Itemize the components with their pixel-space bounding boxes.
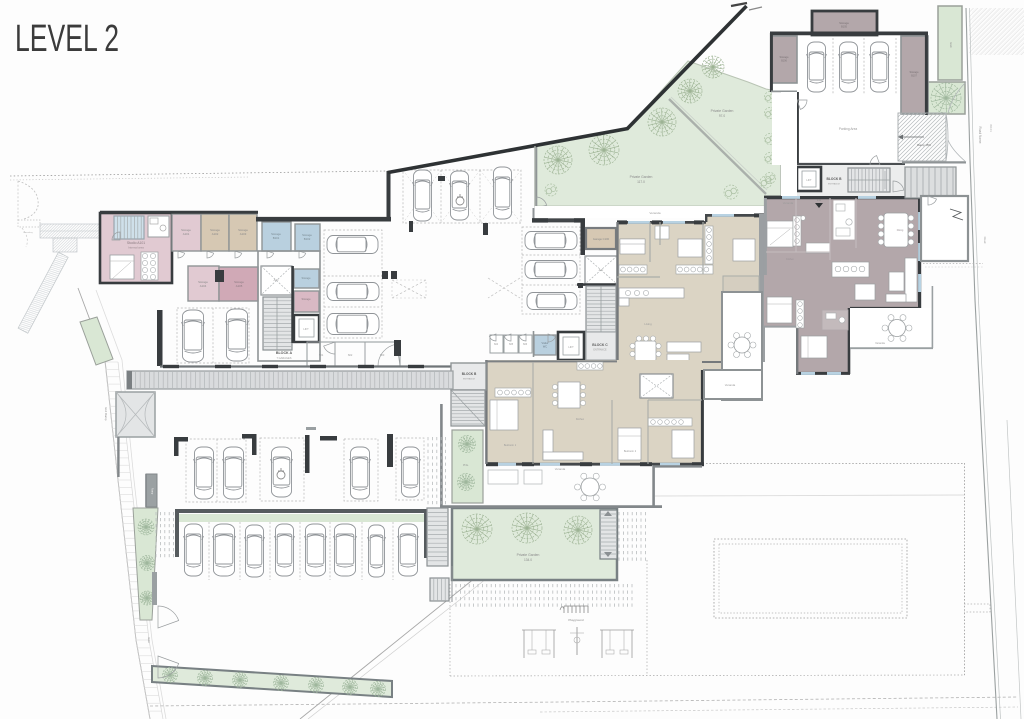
svg-text:S04: S04 [494,343,499,346]
svg-text:LIFT: LIFT [303,327,309,331]
svg-text:B101: B101 [273,236,280,240]
svg-text:Veranda: Veranda [649,211,661,215]
svg-text:BLOCK A: BLOCK A [276,351,293,355]
svg-text:ENTRANCE: ENTRANCE [593,349,607,352]
svg-text:Bedroom 2: Bedroom 2 [624,450,637,453]
svg-text:S05: S05 [509,343,514,346]
svg-text:Exit: Exit [949,42,953,47]
svg-text:B107: B107 [911,75,917,78]
svg-text:117.0: 117.0 [637,180,645,184]
svg-text:A105: A105 [236,284,243,288]
svg-text:Veranda: Veranda [875,341,885,345]
svg-text:Dining: Dining [897,230,904,232]
svg-text:Studio A101: Studio A101 [127,241,145,245]
svg-text:S06: S06 [523,343,528,346]
svg-text:B105: B105 [841,26,847,29]
svg-text:Storage: Storage [909,70,919,74]
svg-text:LIFT: LIFT [806,179,812,182]
svg-text:A/C: A/C [273,278,279,282]
svg-text:7 GARAGES: 7 GARAGES [277,356,292,360]
svg-text:BLOCK B: BLOCK B [826,177,842,181]
svg-text:A102: A102 [212,232,219,236]
svg-text:LIFT: LIFT [568,345,574,349]
svg-text:B106: B106 [781,60,787,63]
svg-text:Veranda: Veranda [783,201,794,205]
svg-text:Storage: Storage [839,21,849,25]
svg-text:LEVEL 2: LEVEL 2 [15,18,119,60]
svg-text:Veranda: Veranda [555,467,566,471]
svg-text:Kitchen: Kitchen [786,258,794,261]
svg-text:Road: Road [983,237,987,244]
svg-text:A/C: A/C [599,268,604,272]
svg-text:Private Garden: Private Garden [711,109,734,113]
svg-text:Veranda: Veranda [725,383,736,387]
svg-text:B102: B102 [304,237,311,241]
svg-text:Private Garden: Private Garden [517,553,540,557]
svg-text:A103: A103 [240,232,247,236]
svg-text:Storage: Storage [301,276,311,280]
svg-text:Playground: Playground [568,618,584,622]
svg-text:Ramp: Ramp [151,488,154,495]
svg-text:A101: A101 [183,232,190,236]
svg-text:W101: W101 [989,124,993,132]
svg-text:Parking Area: Parking Area [839,127,857,131]
svg-text:Living: Living [644,322,652,326]
svg-text:Internal area: Internal area [128,246,144,250]
svg-text:134.0: 134.0 [524,558,532,562]
svg-text:S02: S02 [348,353,353,357]
svg-text:Ramp 15%: Ramp 15% [917,143,931,147]
svg-text:ENTRANCE: ENTRANCE [463,378,476,381]
svg-text:BLOCK C: BLOCK C [592,343,608,347]
svg-text:A104: A104 [200,284,207,288]
svg-text:Exit Ramp: Exit Ramp [104,408,108,421]
svg-text:Gate: Gate [147,637,151,643]
svg-text:P.G.: P.G. [463,463,469,467]
svg-text:Storage: Storage [301,297,311,301]
svg-text:Garage C100: Garage C100 [593,237,610,241]
svg-text:WC: WC [543,346,547,349]
svg-text:Private Garden: Private Garden [630,175,653,179]
svg-text:BLOCK B: BLOCK B [462,372,477,376]
svg-text:Bedroom 1: Bedroom 1 [504,444,517,447]
svg-text:Road Name: Road Name [978,126,982,143]
svg-text:Kitchen: Kitchen [576,418,585,421]
svg-text:Boundary: Boundary [23,231,33,234]
svg-text:Storage: Storage [779,55,789,59]
svg-text:ENTRANCE: ENTRANCE [828,183,841,186]
svg-text:97.0: 97.0 [719,114,725,118]
